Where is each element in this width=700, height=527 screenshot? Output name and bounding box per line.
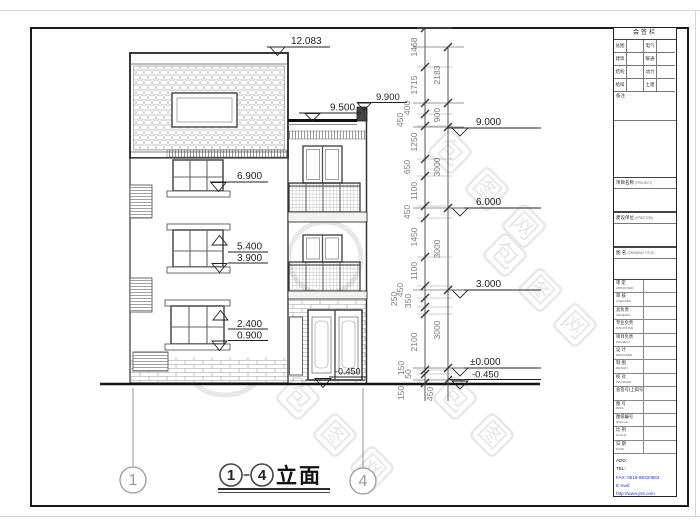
title-text: 立面 <box>276 464 322 488</box>
entry-sidelight <box>290 317 303 375</box>
svg-text:1450: 1450 <box>409 227 419 246</box>
title-block-rows: 审 定APPROVED 审 核CHECKED 总负责GENERAL 专业负责DI… <box>614 280 676 454</box>
svg-text:450: 450 <box>425 387 435 401</box>
balcony-railing-3f <box>289 183 360 212</box>
svg-text:0.900: 0.900 <box>237 331 262 342</box>
tb-row: 设 计DESIGNED <box>614 347 676 360</box>
svg-text:1100: 1100 <box>409 182 419 201</box>
dimension-chains: 1468 1715 400 450 1250 650 1100 450 1450… <box>389 27 464 401</box>
svg-text:9.500: 9.500 <box>330 103 355 114</box>
svg-text:3.000: 3.000 <box>476 279 501 290</box>
svg-text:9.900: 9.900 <box>376 92 400 103</box>
tb-row: 图纸编号DWG No. <box>614 414 676 427</box>
svg-text:1100: 1100 <box>409 262 419 281</box>
svg-text:2183: 2183 <box>432 65 442 84</box>
page-right-edge <box>695 10 696 517</box>
tb-row: 日 期DATE <box>614 441 676 454</box>
tb-row: 项目负责PROJECT <box>614 334 676 347</box>
svg-text:3000: 3000 <box>432 239 442 258</box>
contact-web: http://www.jrrs.com <box>616 490 674 498</box>
tb-row: 审 定APPROVED <box>614 280 676 293</box>
sign-bar-note: 备注 <box>614 92 676 121</box>
svg-text:3000: 3000 <box>432 157 442 176</box>
svg-text:-0.450: -0.450 <box>472 370 499 381</box>
svg-text:3.900: 3.900 <box>237 253 262 264</box>
svg-text:450: 450 <box>402 205 412 219</box>
floor-slab-band <box>288 212 367 222</box>
sign-bar-title: 会签栏 <box>614 28 676 40</box>
contact-info: ADD: TEL: FAX: 0519-88320563 E-mail: htt… <box>614 454 676 501</box>
svg-text:4: 4 <box>359 473 368 490</box>
tb-row: 图 号DWG <box>614 401 676 414</box>
left-bay <box>130 150 288 383</box>
svg-text:±0.000: ±0.000 <box>470 357 501 368</box>
svg-text:1: 1 <box>129 472 138 489</box>
svg-text:2.400: 2.400 <box>237 319 262 330</box>
window-1f <box>165 300 230 350</box>
cad-elevation-screenshot: { "drawing": { "title_label": "立面", "tit… <box>0 0 700 527</box>
svg-text:6.900: 6.900 <box>237 171 262 182</box>
section-project: 项目名称 (PROJECT) <box>614 177 676 189</box>
tb-row: 比 例SCALE <box>614 427 676 440</box>
svg-text:4: 4 <box>258 467 267 484</box>
contact-tel: TEL: <box>616 465 674 473</box>
svg-text:6.000: 6.000 <box>476 197 501 208</box>
svg-text:5.400: 5.400 <box>237 242 262 253</box>
eave-band <box>167 150 288 157</box>
page-bottom-edge <box>0 516 700 517</box>
tb-row: 会签号(上岗号) <box>614 387 676 400</box>
contact-add: ADD: <box>616 457 674 465</box>
grid-bubble-1: 1 <box>120 388 146 493</box>
section-drawing-title: 图 名 (DRAWING TITLE) <box>614 247 676 259</box>
contact-fax: FAX: 0519-88320563 <box>616 474 674 482</box>
svg-text:900: 900 <box>432 108 442 122</box>
page-top-edge <box>0 10 700 11</box>
drawing-title: 1 4 立面 <box>218 464 330 493</box>
title-block: 会签栏 总图 电气 建筑 暖通 结构 动力 给排水 土建 备注 项目名称 (PR… <box>613 27 677 497</box>
svg-text:250: 250 <box>389 292 399 306</box>
sign-bar-grid: 总图 电气 建筑 暖通 结构 动力 给排水 土建 <box>614 40 676 92</box>
tb-row: 审 核CHECKED <box>614 293 676 306</box>
svg-text:50: 50 <box>403 369 413 379</box>
svg-text:3000: 3000 <box>432 320 442 339</box>
svg-text:350: 350 <box>403 294 413 308</box>
sliding-door-3f <box>303 146 342 183</box>
svg-text:1468: 1468 <box>409 37 419 56</box>
roof-block <box>130 53 288 158</box>
contact-email: E-mail: <box>616 482 674 490</box>
svg-text:图: 图 <box>315 415 355 455</box>
tb-row: 总负责GENERAL <box>614 307 676 320</box>
svg-text:1250: 1250 <box>409 132 419 151</box>
svg-text:2100: 2100 <box>409 332 419 351</box>
section-erector: 建设单位 (ERECTOR) <box>614 212 676 224</box>
sliding-door-2f <box>303 235 342 262</box>
svg-text:网: 网 <box>555 305 595 345</box>
tb-row: 制 图DRAWN <box>614 360 676 373</box>
tb-row: 校 对PROOFED <box>614 374 676 387</box>
svg-text:12.083: 12.083 <box>291 36 322 47</box>
svg-text:-0.450: -0.450 <box>335 367 361 377</box>
grid-bubble-4: 4 <box>350 388 376 494</box>
dim-labels-outer: 2183 900 3000 3000 3000 450 <box>425 65 442 401</box>
balcony-railing-2f <box>289 262 360 291</box>
svg-text:650: 650 <box>402 160 412 174</box>
svg-text:450: 450 <box>395 113 405 127</box>
svg-text:150: 150 <box>396 386 406 400</box>
fascia-band <box>289 131 366 139</box>
elevation-drawing: 包 图 网 包 图 网 包 图 网 包 图 <box>30 27 600 505</box>
window-3f <box>167 160 230 197</box>
svg-text:1: 1 <box>227 467 235 484</box>
middle-section <box>288 107 367 383</box>
window-2f <box>167 224 230 273</box>
svg-text:图: 图 <box>472 415 512 455</box>
svg-text:1715: 1715 <box>409 75 419 94</box>
svg-text:9.000: 9.000 <box>476 117 501 128</box>
tb-row: 专业负责DISCIPLINE <box>614 320 676 333</box>
floor-slab-band <box>288 291 367 299</box>
